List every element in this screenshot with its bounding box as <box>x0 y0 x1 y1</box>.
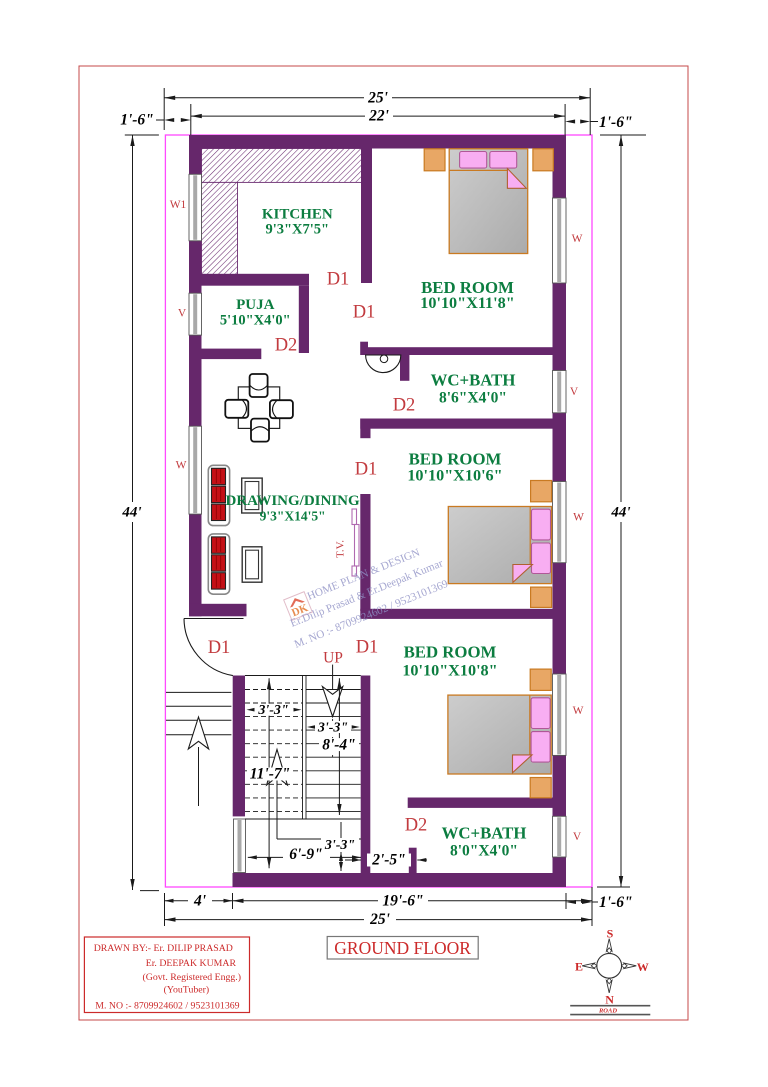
svg-text:3'-3": 3'-3" <box>257 703 288 718</box>
svg-text:D1: D1 <box>208 638 231 658</box>
svg-text:PUJA: PUJA <box>236 297 274 313</box>
svg-text:44': 44' <box>610 505 630 521</box>
svg-text:DRAWN BY:- Er. DILIP PRASAD: DRAWN BY:- Er. DILIP PRASAD <box>94 943 233 954</box>
svg-text:44': 44' <box>121 505 141 521</box>
svg-text:8'6"X4'0": 8'6"X4'0" <box>439 389 507 406</box>
svg-text:W: W <box>573 705 584 717</box>
svg-text:25': 25' <box>367 89 388 106</box>
svg-text:S: S <box>607 927 614 941</box>
svg-text:10'10"X10'6": 10'10"X10'6" <box>407 466 502 484</box>
svg-text:(YouTuber): (YouTuber) <box>164 985 209 996</box>
svg-text:WC+BATH: WC+BATH <box>442 824 527 843</box>
svg-text:19'-6": 19'-6" <box>382 892 423 909</box>
svg-text:V: V <box>573 831 582 843</box>
svg-text:D2: D2 <box>405 816 428 836</box>
svg-text:1'-6": 1'-6" <box>120 112 154 129</box>
svg-text:D2: D2 <box>275 336 298 356</box>
svg-text:GROUND FLOOR: GROUND FLOOR <box>334 938 471 958</box>
svg-text:8'0"X4'0": 8'0"X4'0" <box>450 842 518 859</box>
svg-text:T.V.: T.V. <box>335 540 347 558</box>
svg-text:4': 4' <box>193 892 206 909</box>
svg-text:8'-4": 8'-4" <box>322 736 356 753</box>
svg-text:ROAD: ROAD <box>598 1007 617 1014</box>
svg-text:10'10"X10'8": 10'10"X10'8" <box>402 661 497 679</box>
svg-text:V: V <box>570 386 579 398</box>
svg-text:22': 22' <box>368 108 389 125</box>
svg-text:11'-7": 11'-7" <box>250 766 290 783</box>
svg-text:W: W <box>637 960 649 974</box>
svg-text:UP: UP <box>323 649 343 666</box>
svg-text:D1: D1 <box>355 460 378 480</box>
svg-text:3'-3": 3'-3" <box>324 838 355 853</box>
svg-text:3'-3": 3'-3" <box>317 720 348 735</box>
svg-text:WC+BATH: WC+BATH <box>431 370 516 389</box>
svg-text:E: E <box>575 960 583 974</box>
svg-text:M. NO :- 8709924602 / 95231013: M. NO :- 8709924602 / 9523101369 <box>95 1001 239 1012</box>
svg-text:W1: W1 <box>170 199 187 211</box>
svg-text:W: W <box>572 233 583 245</box>
svg-text:9'3"X7'5": 9'3"X7'5" <box>265 221 329 237</box>
svg-text:(Govt. Registered Engg.): (Govt. Registered Engg.) <box>143 972 242 983</box>
svg-text:W: W <box>573 512 584 524</box>
svg-text:D1: D1 <box>327 270 350 290</box>
svg-text:D1: D1 <box>356 638 379 658</box>
svg-text:9'3"X14'5": 9'3"X14'5" <box>260 509 326 524</box>
svg-text:KITCHEN: KITCHEN <box>262 207 333 223</box>
svg-text:D1: D1 <box>353 303 376 323</box>
svg-text:1'-6": 1'-6" <box>599 114 633 131</box>
svg-text:W: W <box>176 460 187 472</box>
svg-text:BED ROOM: BED ROOM <box>404 643 497 662</box>
svg-text:25': 25' <box>369 911 390 928</box>
svg-text:1'-6": 1'-6" <box>599 894 633 911</box>
svg-text:6'-9": 6'-9" <box>289 846 323 863</box>
svg-text:N: N <box>605 992 614 1006</box>
svg-text:2'-5": 2'-5" <box>371 852 406 869</box>
svg-text:DRAWING/DINING: DRAWING/DINING <box>226 493 361 509</box>
svg-text:V: V <box>178 308 187 320</box>
svg-text:D2: D2 <box>393 396 416 416</box>
svg-text:5'10"X4'0": 5'10"X4'0" <box>220 312 291 328</box>
svg-text:Er. DEEPAK KUMAR: Er. DEEPAK KUMAR <box>146 958 237 969</box>
svg-text:10'10"X11'8": 10'10"X11'8" <box>420 294 514 312</box>
